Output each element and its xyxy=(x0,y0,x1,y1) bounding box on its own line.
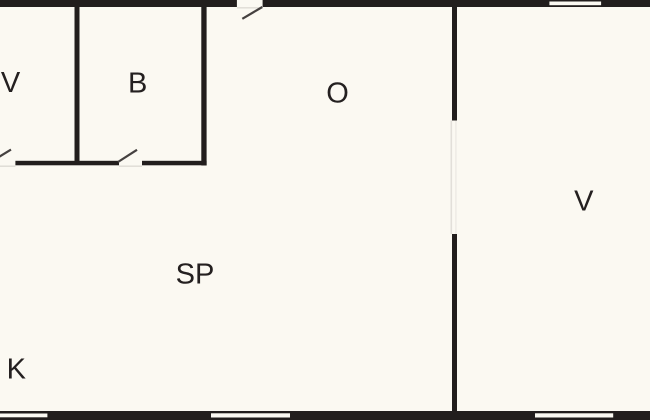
svg-text:B: B xyxy=(128,67,147,99)
svg-text:SP: SP xyxy=(176,258,215,290)
svg-text:V: V xyxy=(1,67,21,99)
svg-text:K: K xyxy=(7,353,27,385)
svg-text:O: O xyxy=(326,77,349,109)
svg-text:V: V xyxy=(574,185,594,217)
